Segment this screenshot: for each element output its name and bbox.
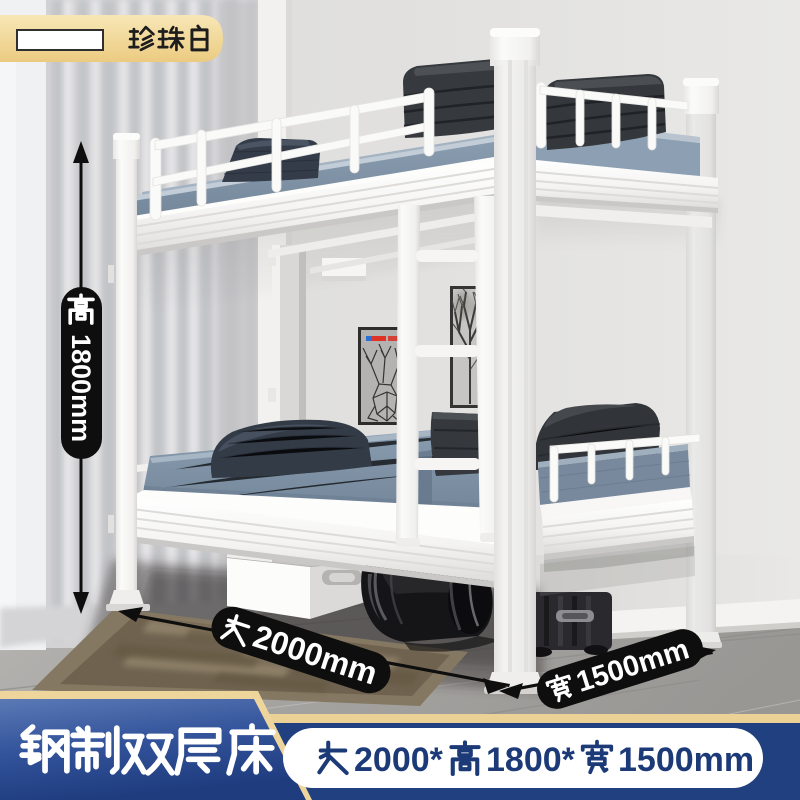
- svg-text:2000*: 2000*: [354, 741, 444, 779]
- svg-text:1800mm: 1800mm: [66, 334, 96, 442]
- svg-text:1500mm: 1500mm: [618, 741, 754, 779]
- svg-text:1800*: 1800*: [486, 741, 576, 779]
